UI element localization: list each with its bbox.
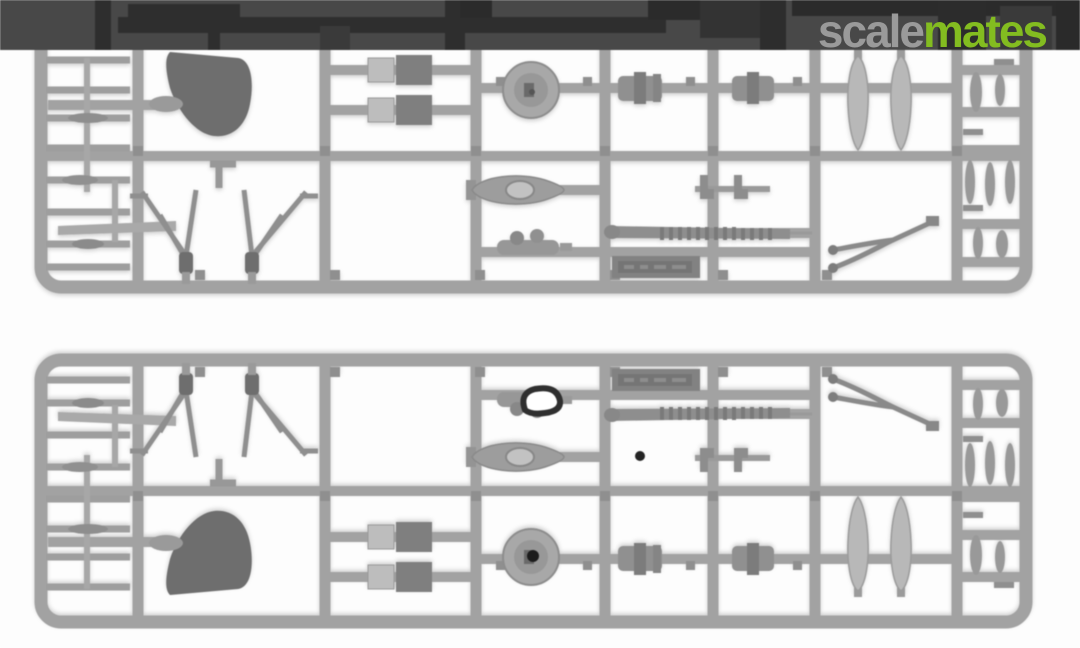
sprue-photo-page: scalemates (0, 0, 1080, 648)
windscreen-frame-part (523, 388, 560, 413)
wheel-hub-hole (527, 550, 539, 562)
part-locating-hole (635, 451, 645, 461)
header-strip (0, 0, 1080, 50)
sprue-photo (0, 0, 1080, 648)
